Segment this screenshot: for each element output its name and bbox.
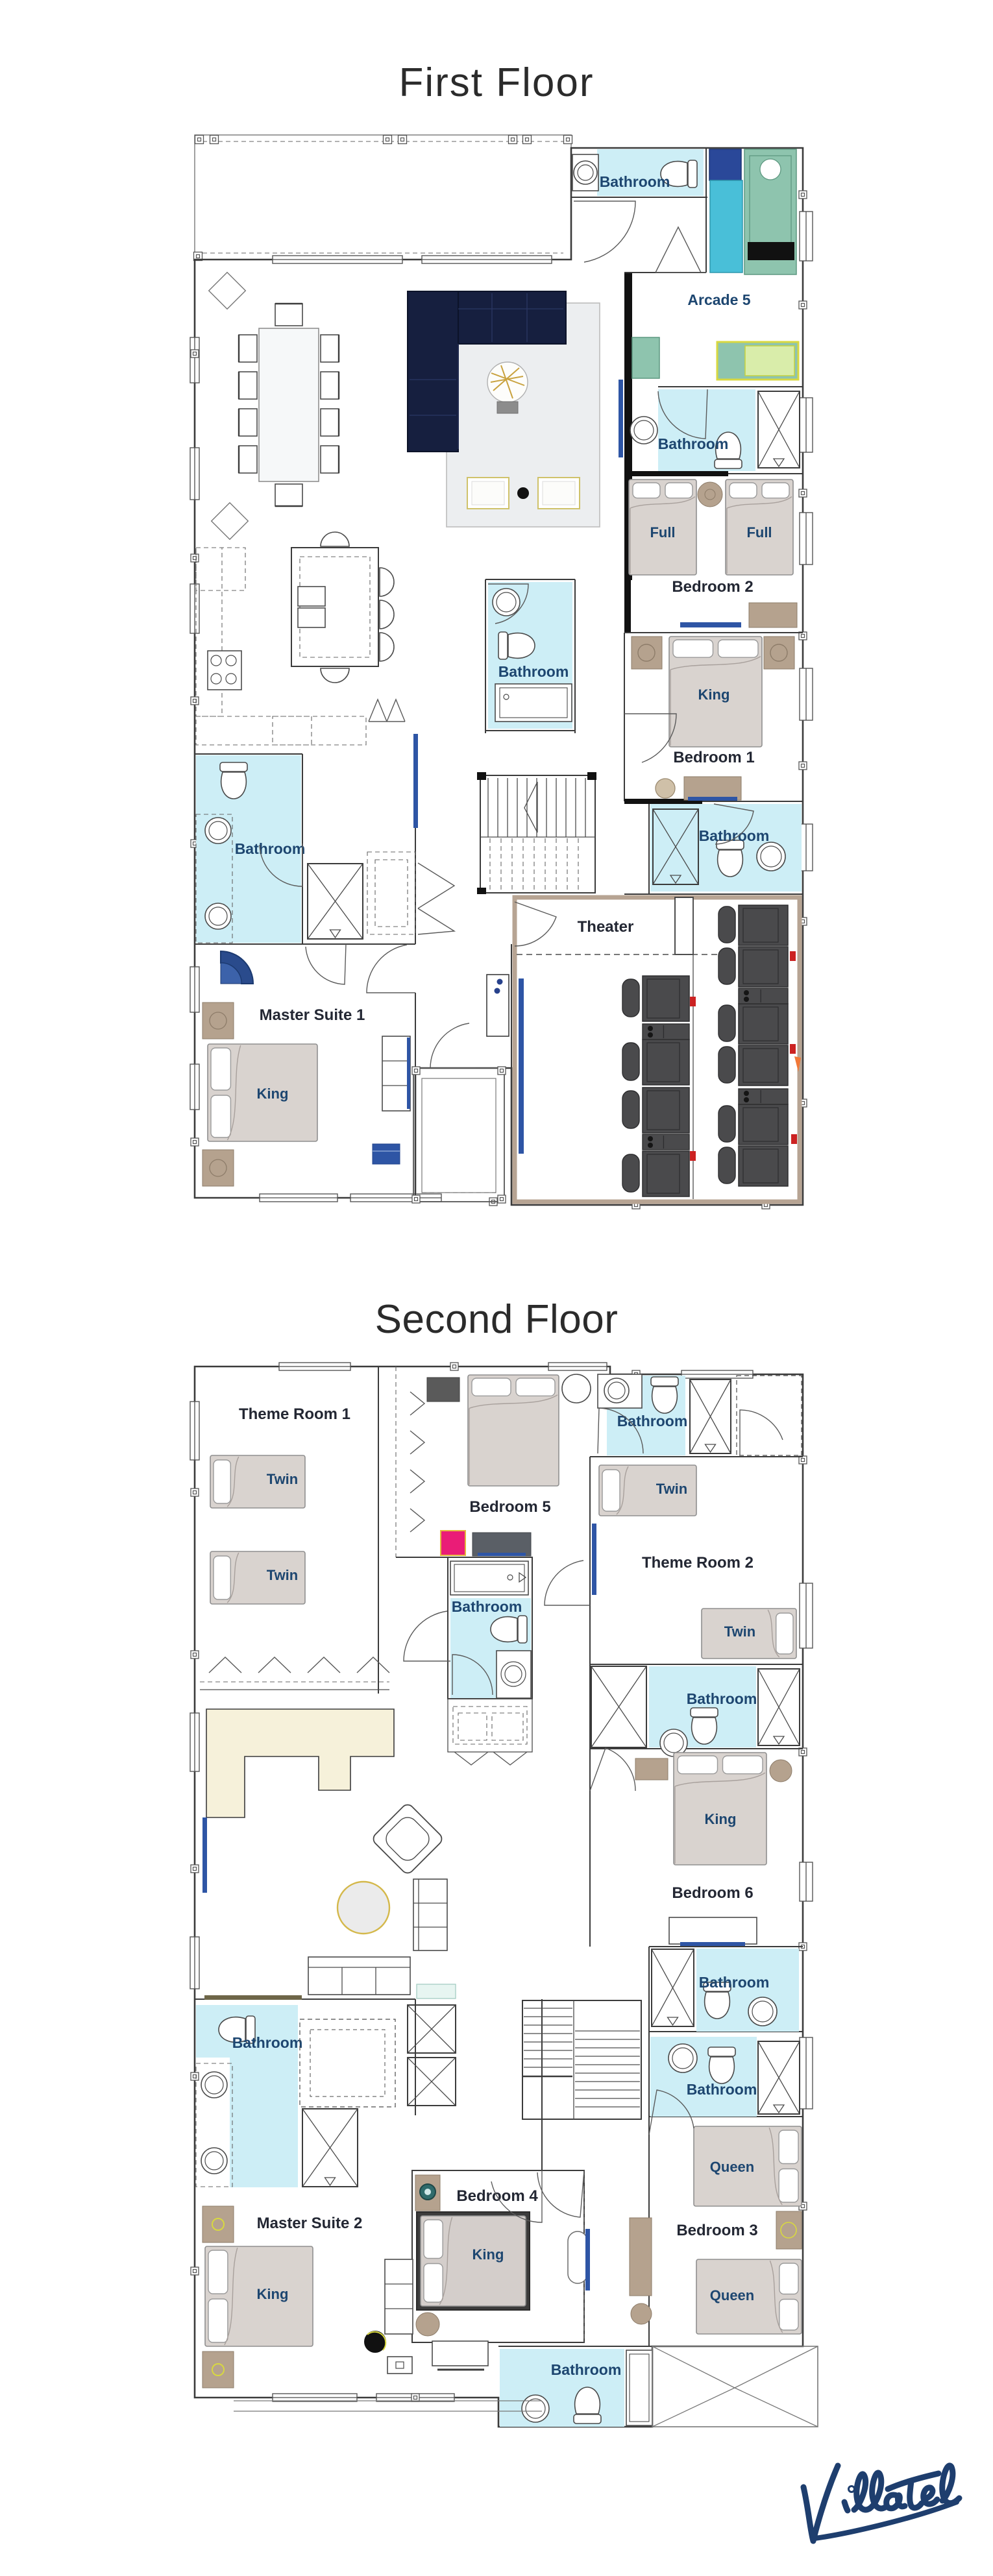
svg-text:First Floor: First Floor (399, 60, 595, 105)
svg-text:Master Suite 2: Master Suite 2 (257, 2215, 363, 2232)
svg-text:Bedroom 5: Bedroom 5 (469, 1498, 550, 1516)
svg-text:Twin: Twin (724, 1623, 755, 1640)
svg-text:Bedroom 1: Bedroom 1 (673, 749, 754, 766)
svg-text:Bathroom: Bathroom (551, 2361, 622, 2378)
svg-text:Bedroom 3: Bedroom 3 (676, 2222, 757, 2239)
svg-text:Bathroom: Bathroom (699, 1974, 770, 1991)
svg-text:King: King (257, 2286, 289, 2302)
svg-text:Bathroom: Bathroom (658, 435, 729, 452)
svg-text:King: King (472, 2246, 504, 2263)
svg-text:King: King (698, 687, 730, 703)
svg-text:Bathroom: Bathroom (687, 2081, 757, 2098)
svg-text:King: King (705, 1811, 737, 1827)
svg-text:Bathroom: Bathroom (498, 663, 569, 680)
svg-text:Bathroom: Bathroom (235, 840, 306, 857)
svg-text:Theater: Theater (578, 918, 634, 936)
svg-text:Twin: Twin (267, 1471, 298, 1487)
svg-text:King: King (257, 1086, 289, 1102)
svg-text:Full: Full (650, 524, 675, 541)
svg-text:Bathroom: Bathroom (232, 2034, 303, 2051)
svg-text:Second Floor: Second Floor (375, 1297, 619, 1342)
svg-text:Theme Room 2: Theme Room 2 (642, 1554, 754, 1572)
svg-text:Master Suite 1: Master Suite 1 (260, 1006, 365, 1024)
svg-text:Twin: Twin (656, 1481, 687, 1497)
svg-text:Bedroom 4: Bedroom 4 (456, 2187, 538, 2205)
svg-text:Theme Room 1: Theme Room 1 (239, 1405, 350, 1423)
svg-text:Bathroom: Bathroom (600, 173, 670, 190)
svg-text:Bathroom: Bathroom (699, 827, 770, 844)
svg-text:Bedroom 6: Bedroom 6 (672, 1884, 753, 1902)
svg-text:Queen: Queen (710, 2287, 754, 2303)
svg-text:Bathroom: Bathroom (687, 1690, 757, 1707)
svg-text:Twin: Twin (267, 1567, 298, 1583)
svg-text:Arcade 5: Arcade 5 (687, 291, 750, 308)
svg-text:Bedroom 2: Bedroom 2 (672, 578, 753, 596)
svg-text:Full: Full (746, 524, 772, 541)
svg-text:Bathroom: Bathroom (452, 1598, 522, 1615)
svg-text:Queen: Queen (710, 2159, 754, 2175)
svg-text:Bathroom: Bathroom (617, 1413, 688, 1429)
